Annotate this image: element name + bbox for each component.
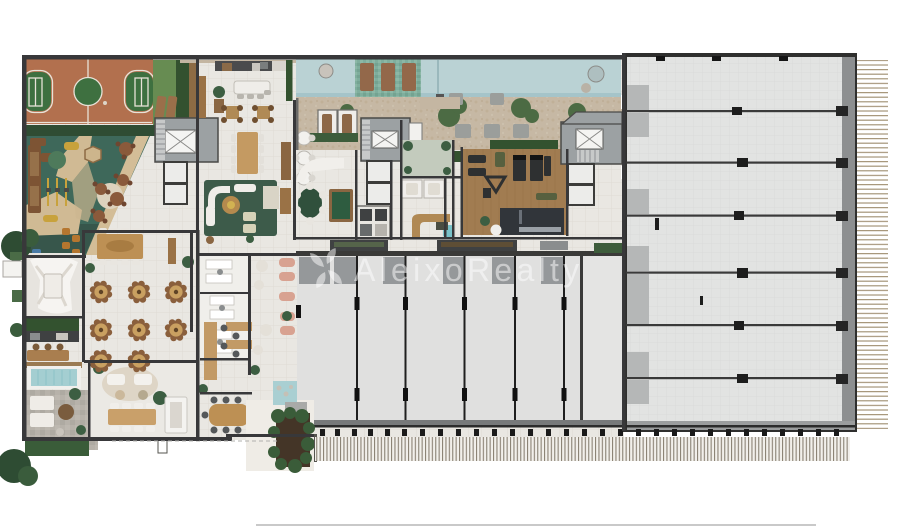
svg-text:AleixoRealty: AleixoRealty [354, 252, 583, 288]
